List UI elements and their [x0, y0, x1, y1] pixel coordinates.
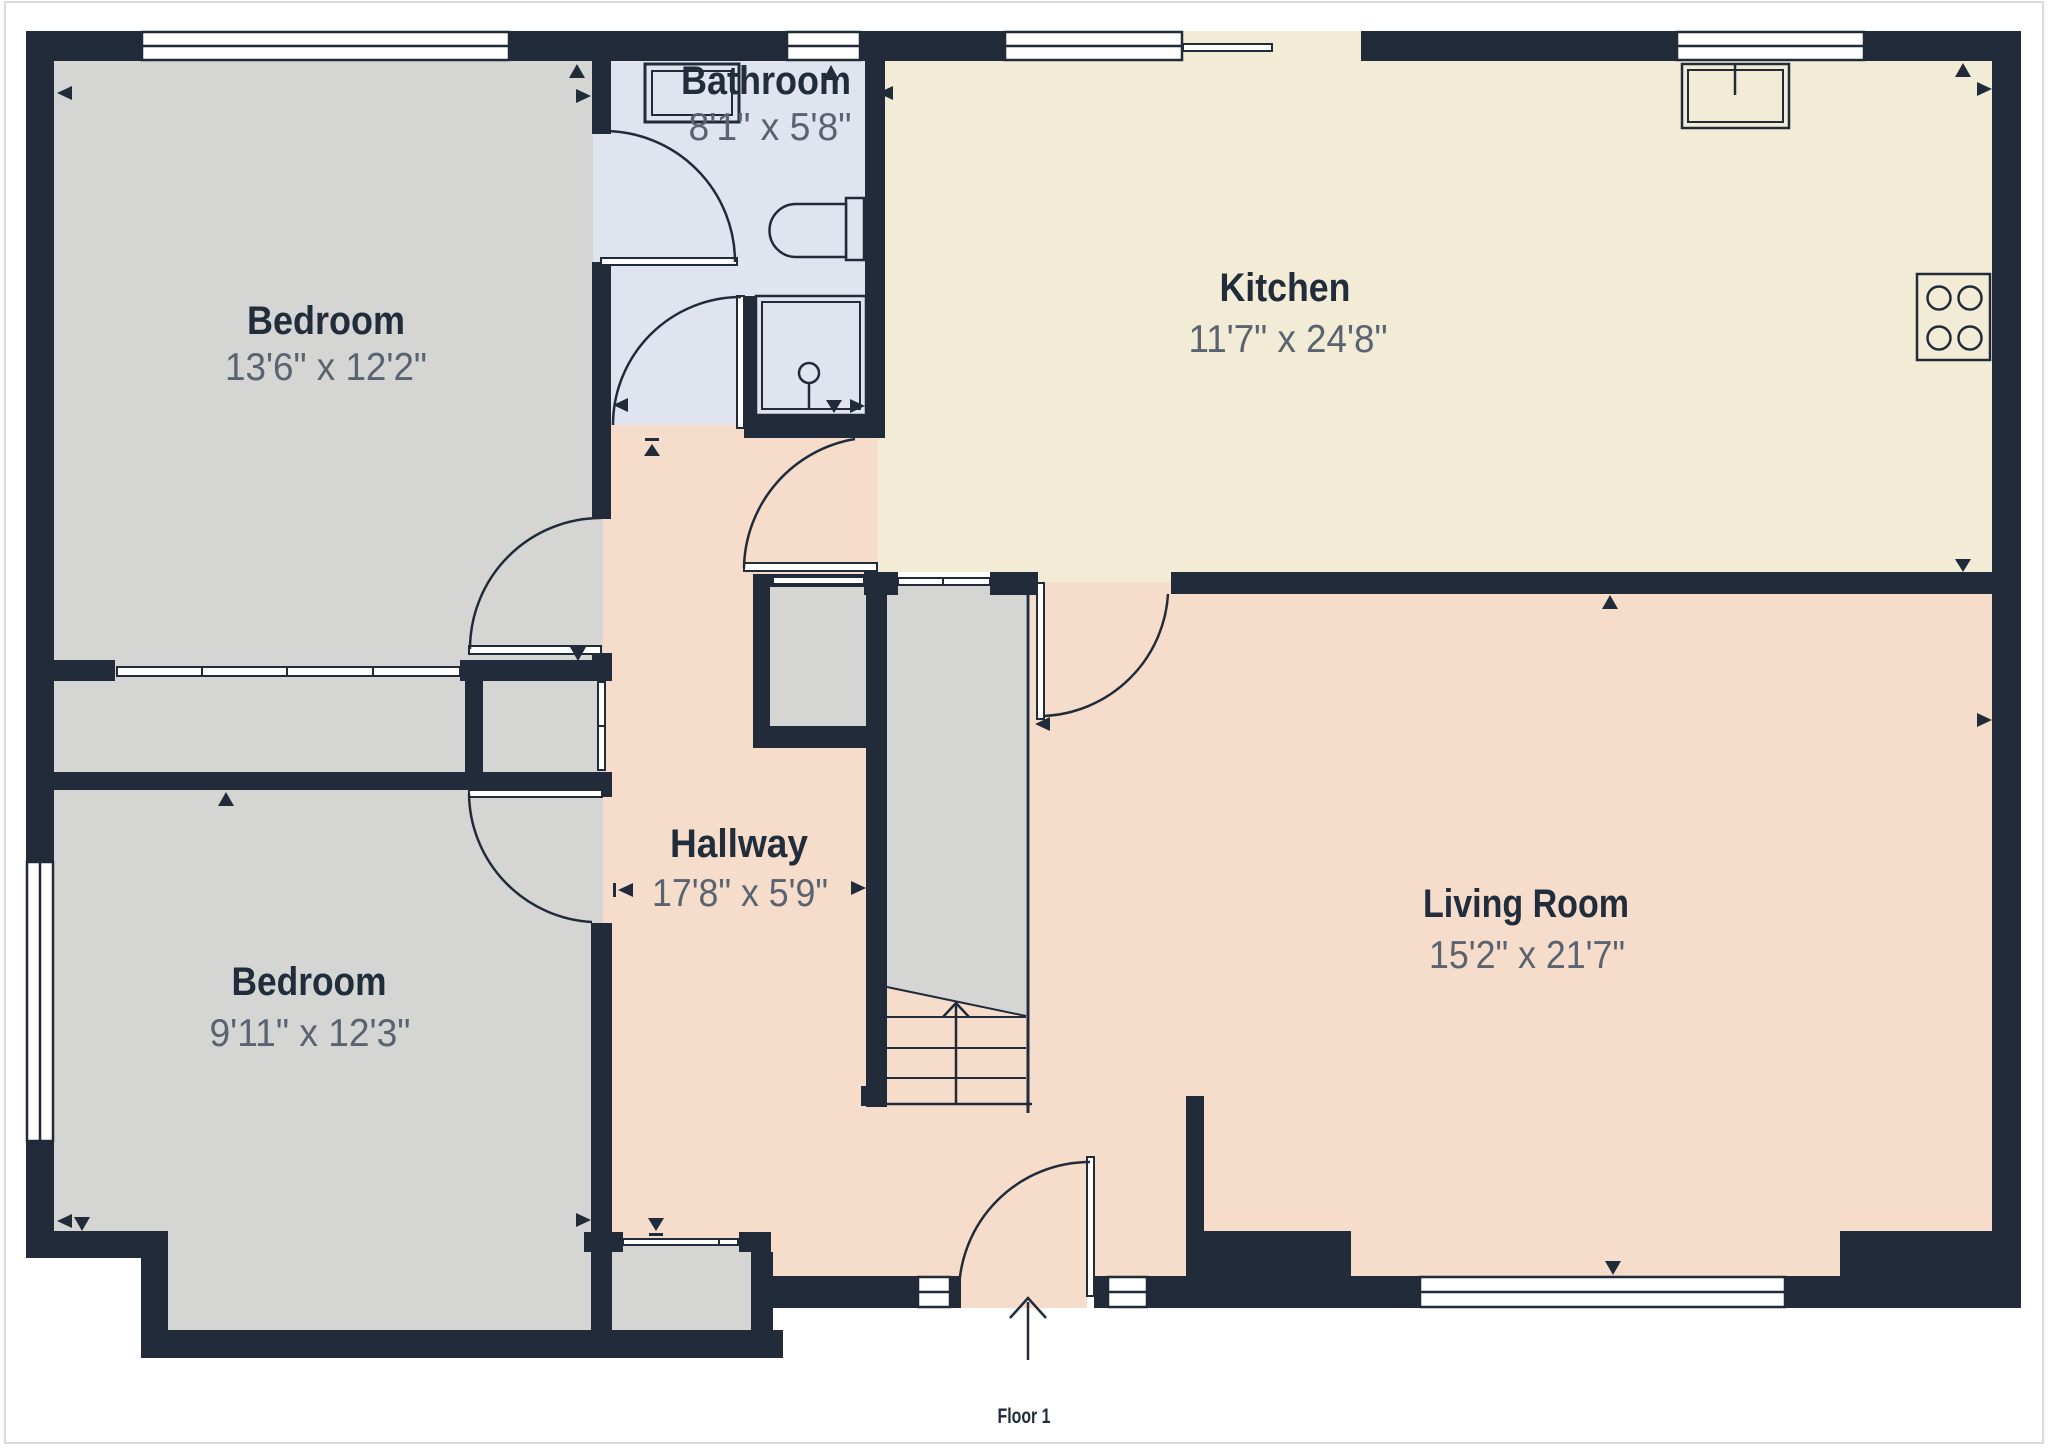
svg-text:8'1" x 5'8": 8'1" x 5'8"	[689, 106, 852, 149]
svg-text:13'6" x 12'2": 13'6" x 12'2"	[225, 346, 427, 389]
svg-text:Hallway: Hallway	[670, 822, 809, 866]
svg-text:15'2" x 21'7": 15'2" x 21'7"	[1429, 934, 1625, 977]
svg-text:Bathroom: Bathroom	[681, 59, 851, 103]
svg-text:Floor 1: Floor 1	[998, 1405, 1051, 1428]
svg-text:17'8" x 5'9": 17'8" x 5'9"	[652, 872, 828, 915]
svg-text:Bedroom: Bedroom	[232, 960, 387, 1004]
svg-text:Kitchen: Kitchen	[1220, 266, 1351, 310]
svg-text:Bedroom: Bedroom	[247, 299, 405, 343]
svg-text:Living Room: Living Room	[1423, 882, 1629, 926]
svg-text:11'7" x 24'8": 11'7" x 24'8"	[1189, 318, 1388, 361]
svg-text:9'11" x 12'3": 9'11" x 12'3"	[210, 1012, 411, 1055]
